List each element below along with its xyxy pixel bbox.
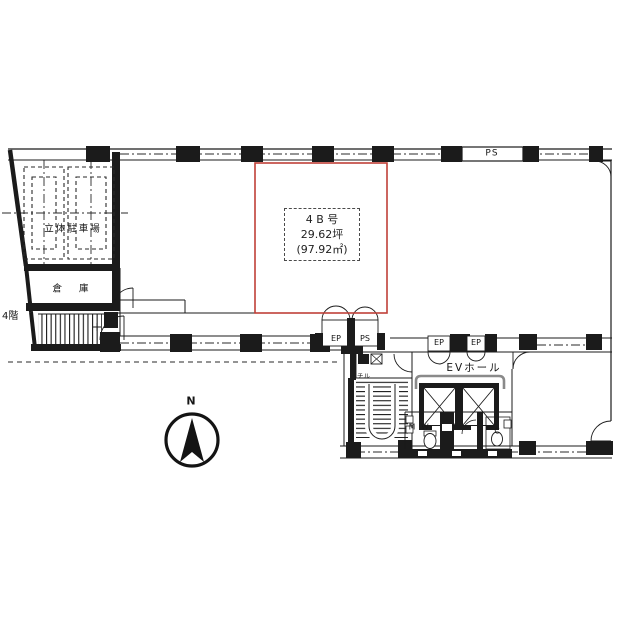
ps-corridor-label: PS bbox=[360, 335, 370, 343]
ep-hall-1-label: EP bbox=[434, 339, 444, 347]
compass-north-label: N bbox=[186, 396, 195, 407]
restroom-c-label: C bbox=[494, 427, 499, 435]
interior-partitions bbox=[118, 268, 255, 336]
parking-label: 立体駐車場 bbox=[44, 224, 102, 234]
elevators bbox=[419, 383, 499, 430]
ep-corridor-label: EP bbox=[331, 335, 341, 343]
unit-area-sqm: (97.92㎡) bbox=[287, 242, 357, 257]
north-arrow bbox=[180, 418, 204, 462]
door-arc-top-right bbox=[595, 161, 611, 177]
door-arc-right-room bbox=[513, 352, 530, 369]
restroom-women-label: W bbox=[421, 423, 428, 431]
toilet bbox=[424, 434, 436, 449]
door-arc-utility bbox=[394, 354, 412, 372]
north-compass bbox=[166, 414, 218, 466]
ev-hall-label: EVホール bbox=[446, 363, 501, 374]
unit-4b-label-box: 4 B 号 29.62坪 (97.92㎡) bbox=[284, 208, 360, 261]
floor-plan-drawing bbox=[0, 0, 630, 630]
ep-hall-2-label: EP bbox=[471, 339, 481, 347]
restroom-men-label: M bbox=[409, 423, 415, 431]
ps-shaft-label: PS bbox=[485, 150, 498, 159]
floor-plan-canvas: PS 立体駐車場 倉 庫 4階 4 B 号 29.62坪 (97.92㎡) EP… bbox=[0, 0, 630, 630]
sink bbox=[504, 420, 511, 428]
door-arc-bottom-right bbox=[591, 421, 611, 441]
unit-area-tsubo: 29.62坪 bbox=[287, 227, 357, 242]
unit-name: 4 B 号 bbox=[287, 212, 357, 227]
right-wall bbox=[591, 160, 613, 455]
utility-label: チル bbox=[357, 373, 370, 380]
parking-area bbox=[10, 150, 120, 271]
warehouse-label: 倉 庫 bbox=[52, 284, 95, 294]
floor-note-label: 4階 bbox=[2, 312, 18, 322]
